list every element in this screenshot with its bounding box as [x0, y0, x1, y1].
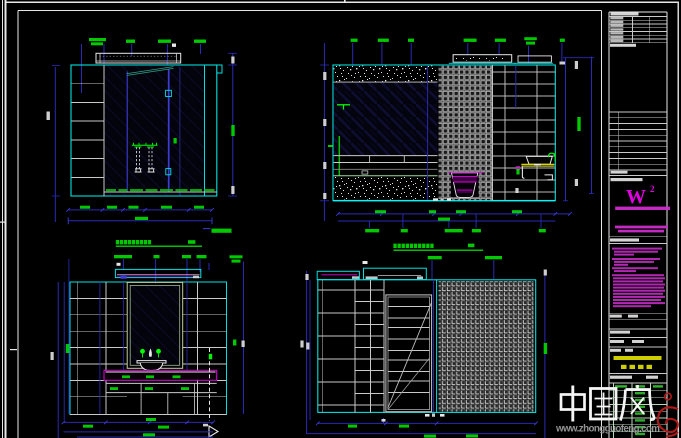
svg-text:2: 2 [650, 184, 655, 194]
svg-text:www.zhongguofeng.com: www.zhongguofeng.com [555, 424, 660, 435]
svg-text:W: W [626, 186, 646, 208]
